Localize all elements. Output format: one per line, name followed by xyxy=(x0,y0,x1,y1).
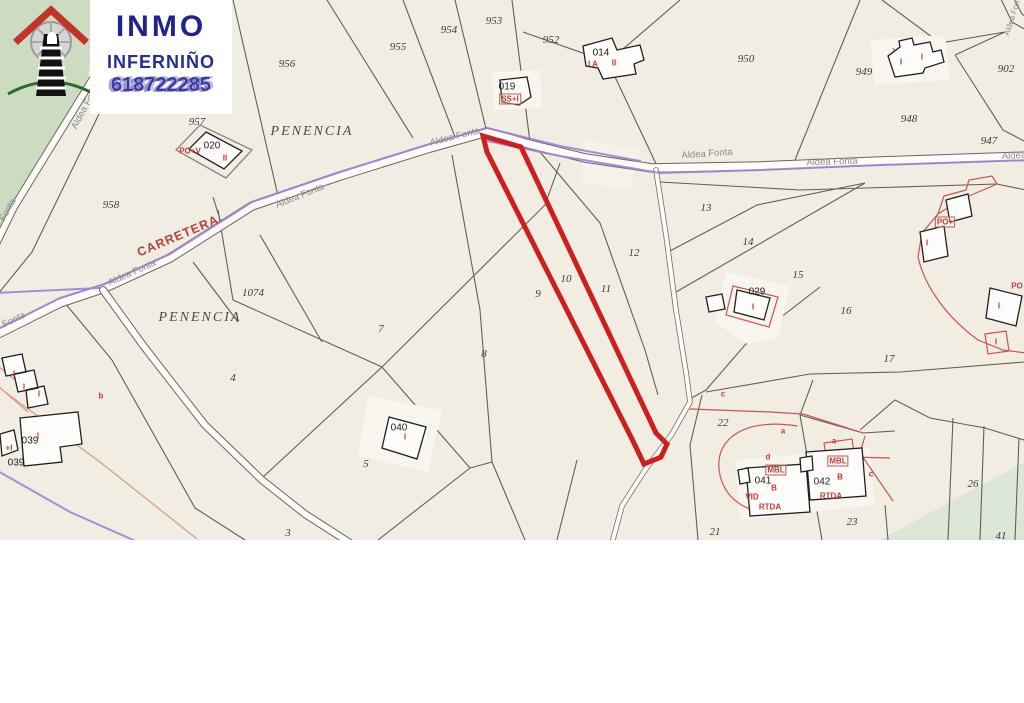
parcel-number: 3 xyxy=(285,527,291,539)
building-number: 039 xyxy=(8,458,25,469)
agency-logo: INMO INFERNIÑO 618722285 xyxy=(0,0,256,120)
road-name-label: Aldea Fonta xyxy=(681,147,733,162)
cadastre-annotation: I xyxy=(995,338,997,347)
logo-phone-number: 618722285 xyxy=(90,74,232,97)
parcel-number: 7 xyxy=(378,323,384,335)
cadastre-annotation: SS+I xyxy=(499,94,521,105)
parcel-number: 10 xyxy=(561,273,572,285)
building-number: 020 xyxy=(204,141,221,152)
parcel-number: 13 xyxy=(701,202,712,214)
parcel-number: 4 xyxy=(230,372,236,384)
parcel-number: 955 xyxy=(390,41,407,53)
parcel-number: 5 xyxy=(363,458,369,470)
road-name-label: Aldea Fonta xyxy=(274,181,326,210)
cadastre-annotation: I xyxy=(926,239,928,248)
parcel-number: 8 xyxy=(481,348,487,360)
lighthouse-logo-icon xyxy=(0,0,100,104)
road-name-label: Fonta xyxy=(0,197,19,224)
parcel-number: 9 xyxy=(535,288,541,300)
map-place-label: PENENCIA xyxy=(159,310,242,326)
logo-plate: INMO INFERNIÑO 618722285 xyxy=(90,0,232,114)
logo-subtitle: INFERNIÑO xyxy=(90,52,232,73)
map-place-label: PENENCIA xyxy=(271,124,354,140)
road-name-label: Aldea Fon xyxy=(1002,0,1022,37)
road-name-label: Aldea Fonta xyxy=(429,125,481,148)
parcel-number: 902 xyxy=(998,63,1015,75)
building-number: 019 xyxy=(499,82,516,93)
cadastre-annotation: +I xyxy=(6,444,13,453)
parcel-number: 16 xyxy=(841,305,852,317)
parcel-number: 953 xyxy=(486,15,503,27)
parcel-number: 23 xyxy=(847,516,858,528)
parcel-number: 948 xyxy=(901,113,918,125)
parcel-number: 11 xyxy=(601,283,611,295)
cadastre-annotation: B xyxy=(771,484,777,493)
cadastre-annotation: I xyxy=(23,383,25,392)
cadastre-annotation: d xyxy=(766,453,771,462)
cadastre-annotation: B xyxy=(837,473,843,482)
cadastral-map: PENENCIAPENENCIACARRETERAAldea FontaAlde… xyxy=(0,0,1024,540)
cadastre-annotation: I xyxy=(900,58,902,67)
building-number: 029 xyxy=(749,287,766,298)
parcel-number: 947 xyxy=(981,135,998,147)
cadastre-annotation: I xyxy=(37,432,39,441)
listing-map-screenshot: PENENCIAPENENCIACARRETERAAldea FontaAlde… xyxy=(0,0,1024,703)
cadastre-annotation: VID xyxy=(745,493,758,502)
building-number: 042 xyxy=(814,477,831,488)
road-name-label: Aldea xyxy=(1002,150,1024,162)
parcel-number: 956 xyxy=(279,58,296,70)
cadastre-annotation: MBL xyxy=(765,465,786,476)
parcel-number: 949 xyxy=(856,66,873,78)
parcel-number: 954 xyxy=(441,24,458,36)
parcel-number: 26 xyxy=(968,478,979,490)
building-number: 014 xyxy=(593,48,610,59)
logo-title: INMO xyxy=(90,10,232,44)
cadastre-annotation: II xyxy=(612,59,616,68)
cadastre-annotation: a xyxy=(832,437,836,446)
parcel-number: 1074 xyxy=(242,287,264,299)
cadastre-annotation: PO xyxy=(1011,282,1023,291)
cadastre-annotation: b xyxy=(99,392,104,401)
road-carretera-label: CARRETERA xyxy=(135,212,221,259)
cadastre-annotation: MBL xyxy=(827,456,848,467)
parcel-number: 14 xyxy=(743,236,754,248)
cadastre-annotation: a xyxy=(781,427,785,436)
cadastre-annotation: I xyxy=(921,53,923,62)
cadastre-annotation: II xyxy=(223,154,227,163)
cadastre-annotation: PO+ xyxy=(935,217,955,228)
cadastre-annotation: I xyxy=(998,302,1000,311)
cadastre-annotation: I xyxy=(38,390,40,399)
cadastre-annotation: PO+V xyxy=(179,147,201,156)
cadastre-annotation: RTDA xyxy=(820,492,842,501)
road-name-label: Aldea Fonta xyxy=(806,156,858,169)
parcel-number: 950 xyxy=(738,53,755,65)
cadastre-annotation: I xyxy=(404,433,406,442)
parcel-number: 21 xyxy=(710,526,721,538)
cadastre-annotation: I xyxy=(13,370,15,379)
cadastre-annotation: I xyxy=(752,303,754,312)
parcel-number: 17 xyxy=(884,353,895,365)
cadastre-annotation: c xyxy=(869,470,873,479)
parcel-number: 952 xyxy=(543,34,560,46)
parcel-number: 12 xyxy=(629,247,640,259)
parcel-number: 15 xyxy=(793,269,804,281)
parcel-number: 41 xyxy=(996,530,1007,540)
building-number: 039 xyxy=(22,436,39,447)
road-name-label: Fonta xyxy=(1,310,28,331)
road-name-label: Aldea Fonta xyxy=(106,258,157,289)
parcel-number: 22 xyxy=(718,417,729,429)
parcel-number: 958 xyxy=(103,199,120,211)
cadastre-annotation: I A xyxy=(588,60,598,69)
cadastre-annotation: RTDA xyxy=(759,503,781,512)
cadastre-annotation: c xyxy=(721,390,725,399)
building-number: 041 xyxy=(755,476,772,487)
